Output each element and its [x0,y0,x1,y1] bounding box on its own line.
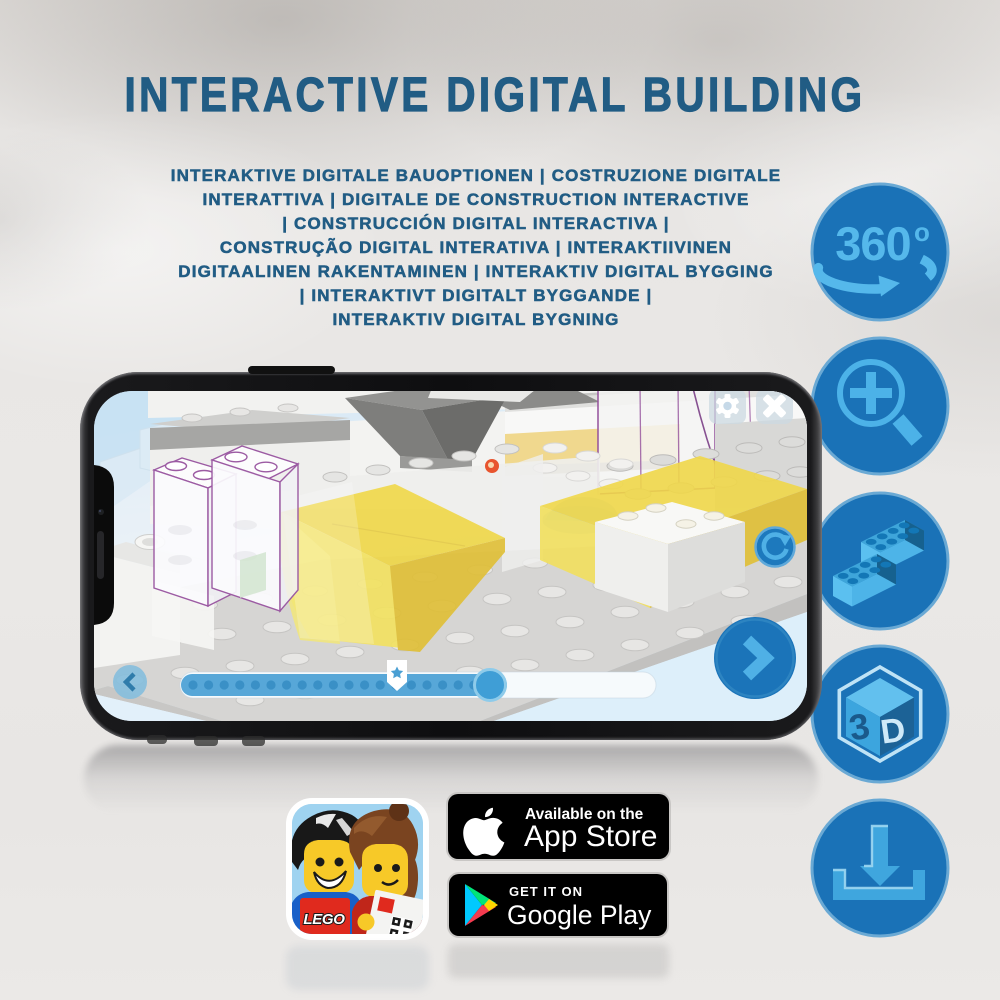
svg-text:D: D [878,711,908,752]
svg-text:o: o [914,217,930,247]
svg-text:Google Play: Google Play [507,900,652,930]
svg-text:LEGO: LEGO [303,911,345,928]
svg-text:GET IT ON: GET IT ON [509,884,583,899]
svg-text:App Store: App Store [524,820,657,853]
svg-text:360: 360 [835,217,910,270]
